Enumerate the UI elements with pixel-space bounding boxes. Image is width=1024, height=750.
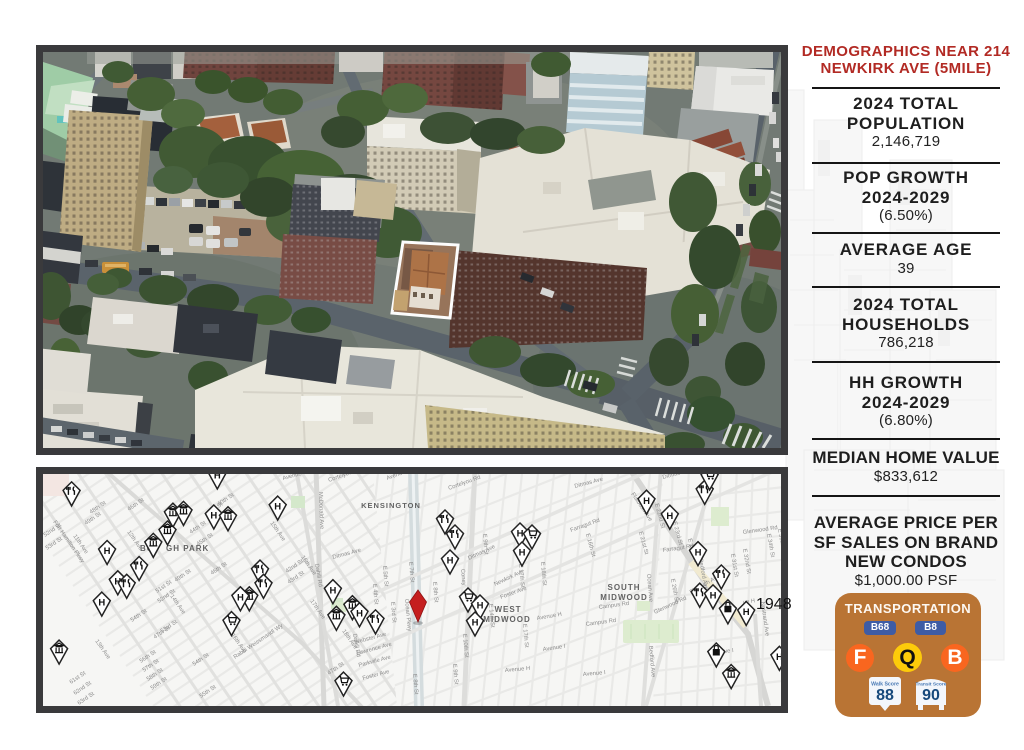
svg-text:GH PARK: GH PARK: [166, 544, 209, 553]
svg-text:SOUTH: SOUTH: [608, 583, 641, 592]
svg-text:WEST: WEST: [494, 605, 521, 614]
svg-text:90: 90: [922, 687, 940, 704]
svg-text:88: 88: [876, 687, 894, 704]
svg-text:KENSINGTON: KENSINGTON: [361, 501, 421, 510]
